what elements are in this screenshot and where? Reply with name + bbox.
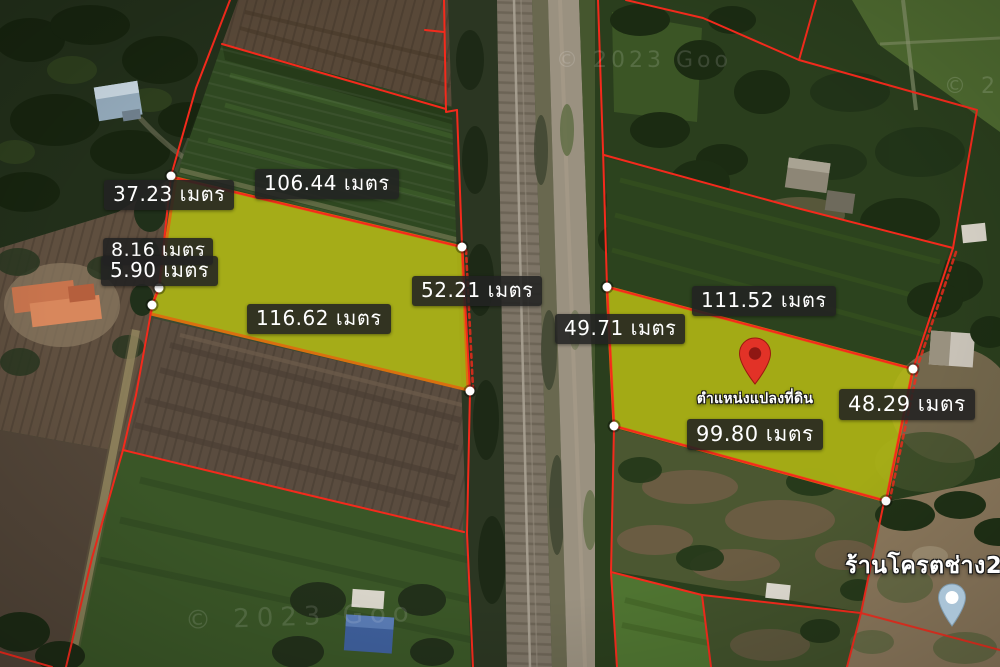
map-canvas[interactable]: © 2023 Goo © 2023 Goo © 2 37.23 เมตร 106… [0, 0, 1000, 667]
measurement-label: 49.71 เมตร [555, 314, 685, 344]
measurement-label: 99.80 เมตร [687, 419, 823, 450]
land-plot-pin-label: ตำแหน่งแปลงที่ดิน [690, 388, 820, 410]
measurement-label: 111.52 เมตร [692, 286, 836, 316]
poi-pin[interactable] [937, 583, 967, 627]
watermark: © 2023 Goo [556, 48, 732, 73]
map-pin-icon [738, 337, 772, 385]
measurement-label: 106.44 เมตร [255, 169, 399, 199]
measurement-label: 5.90 เมตร [101, 256, 218, 286]
measurement-label: 116.62 เมตร [247, 304, 391, 334]
poi-pin-icon [937, 583, 967, 627]
poi-label: ร้านโครตช่าง2 [845, 548, 1000, 584]
watermark: © 2 [944, 74, 999, 99]
measurement-label: 52.21 เมตร [412, 276, 542, 306]
measurement-label: 37.23 เมตร [104, 180, 234, 210]
measurement-label: 48.29 เมตร [839, 389, 975, 420]
land-plot-pin[interactable] [738, 337, 772, 385]
